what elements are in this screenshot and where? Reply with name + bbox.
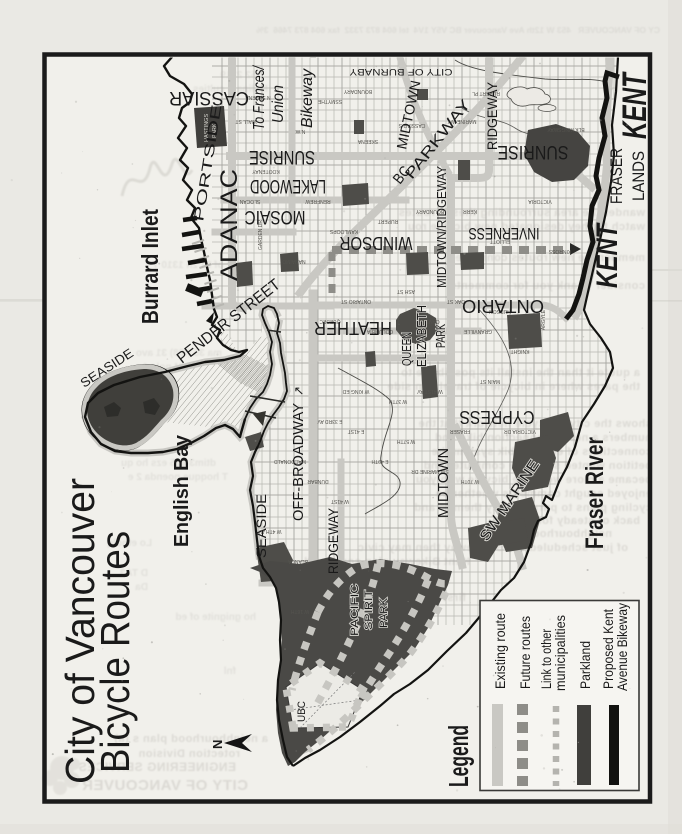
svg-text:Union: Union (270, 85, 287, 123)
svg-text:UBC: UBC (296, 701, 308, 722)
svg-text:RENFREW: RENFREW (305, 198, 331, 204)
svg-text:SKEENA: SKEENA (357, 138, 378, 144)
svg-text:W KING ED: W KING ED (342, 388, 369, 394)
svg-text:KOOTENAY: KOOTENAY (252, 168, 280, 174)
svg-text:ONTARIO: ONTARIO (462, 296, 544, 316)
svg-text:W 70TH: W 70TH (460, 478, 479, 484)
svg-text:ONTARIO ST: ONTARIO ST (341, 298, 371, 304)
svg-text:GRANVILLE: GRANVILLE (463, 328, 492, 334)
svg-text:CYPRESS: CYPRESS (460, 407, 535, 427)
svg-text:LANDS: LANDS (629, 151, 648, 201)
svg-text:FRASER: FRASER (449, 428, 470, 434)
svg-text:English Bay: English Bay (171, 434, 193, 547)
svg-text:DUNBAR: DUNBAR (307, 478, 329, 484)
svg-text:enjoyed caught comments whethe: enjoyed caught comments whether be (435, 488, 652, 500)
svg-text:RIDGEWAY: RIDGEWAY (325, 507, 341, 574)
svg-text:PARK: PARK (434, 324, 448, 348)
svg-text:KINROSS: KINROSS (548, 248, 571, 254)
svg-text:SUNRISE: SUNRISE (249, 146, 315, 167)
svg-text:INVERNESS: INVERNESS (469, 224, 540, 243)
svg-text:ADANAC: ADANAC (216, 169, 243, 281)
svg-text:Burrard Inlet: Burrard Inlet (137, 209, 163, 324)
svg-text:W 37TH: W 37TH (388, 398, 407, 404)
svg-text:Bicycle Routes: Bicycle Routes (92, 531, 138, 773)
svg-text:Existing route: Existing route (492, 613, 508, 689)
svg-text:CITY OF VANCOUVER: CITY OF VANCOUVER (82, 777, 248, 794)
svg-text:fnl: fnl (224, 666, 236, 677)
svg-text:PACIFIC: PACIFIC (349, 584, 361, 636)
svg-text:Legend: Legend (443, 725, 474, 787)
svg-text:N: N (210, 740, 225, 749)
svg-text:↗: ↗ (291, 386, 306, 396)
svg-text:ho gnignite of ed: ho gnignite of ed (175, 612, 256, 623)
svg-text:CY OF VANCOUVER 453 W 12th A: CY OF VANCOUVER 453 W 12th Ave Vancouver… (256, 25, 660, 35)
svg-text:E 49TH: E 49TH (371, 458, 388, 464)
svg-text:Bikeway: Bikeway (299, 68, 316, 128)
svg-text:RIDGEWAY: RIDGEWAY (484, 81, 500, 150)
svg-text:RUPERT: RUPERT (378, 218, 398, 224)
svg-text:WINDSOR: WINDSOR (340, 233, 413, 253)
svg-text:KNIGHT: KNIGHT (511, 348, 530, 354)
svg-text:FRASER: FRASER (607, 148, 626, 204)
svg-text:OFF-BROADWAY: OFF-BROADWAY (290, 403, 307, 521)
svg-text:Fraser River: Fraser River (581, 437, 609, 549)
svg-text:VICTORIA: VICTORIA (528, 198, 552, 204)
svg-text:KENT: KENT (591, 222, 624, 288)
svg-text:W 41ST: W 41ST (331, 498, 349, 504)
svg-text:To Frances/: To Frances/ (251, 65, 268, 130)
svg-text:MIDTOWN/RIDGEWAY: MIDTOWN/RIDGEWAY (435, 165, 449, 288)
svg-text:SPIRIT: SPIRIT (363, 590, 375, 630)
svg-text:dtim3 625 ezs ho qu: dtim3 625 ezs ho qu (121, 458, 216, 469)
svg-text:LAKEWOOD: LAKEWOOD (250, 175, 326, 196)
svg-text:NANAIMO: NANAIMO (282, 258, 305, 264)
svg-text:W 41ST AV: W 41ST AV (417, 388, 443, 394)
svg-text:SEASIDE: SEASIDE (253, 494, 269, 558)
svg-text:SSMYTHE: SSMYTHE (317, 98, 342, 104)
svg-text:E 33RD AV: E 33RD AV (317, 418, 343, 424)
svg-text:BLANCA: BLANCA (287, 558, 308, 564)
svg-text:W 16TH: W 16TH (290, 608, 309, 614)
svg-text:Parkland: Parkland (577, 641, 593, 689)
svg-text:Future routes: Future routes (517, 616, 533, 689)
svg-text:QUEEN: QUEEN (400, 332, 414, 366)
svg-text:VICTORIA DR: VICTORIA DR (504, 428, 536, 434)
svg-text:ELIZABETH: ELIZABETH (415, 305, 429, 367)
svg-text:MOSAIC: MOSAIC (245, 206, 306, 227)
svg-text:E 41ST: E 41ST (348, 428, 365, 434)
svg-text:BLK KINGSWAY: BLK KINGSWAY (547, 126, 585, 132)
svg-text:ASH ST: ASH ST (397, 288, 415, 294)
svg-text:CITY OF BURNABY: CITY OF BURNABY (349, 66, 453, 77)
svg-text:MAIN ST: MAIN ST (480, 378, 500, 384)
svg-text:Avenue Bikeway: Avenue Bikeway (614, 603, 630, 691)
svg-text:MIDTOWN: MIDTOWN (435, 448, 452, 518)
svg-text:BOUNDARY: BOUNDARY (343, 88, 372, 94)
svg-text:SUNRISE: SUNRISE (498, 141, 569, 162)
svg-text:municipalities: municipalities (552, 615, 568, 691)
svg-text:W 57TH: W 57TH (396, 438, 415, 444)
svg-text:PARK: PARK (378, 597, 390, 628)
svg-text:HEATHER: HEATHER (314, 318, 392, 338)
